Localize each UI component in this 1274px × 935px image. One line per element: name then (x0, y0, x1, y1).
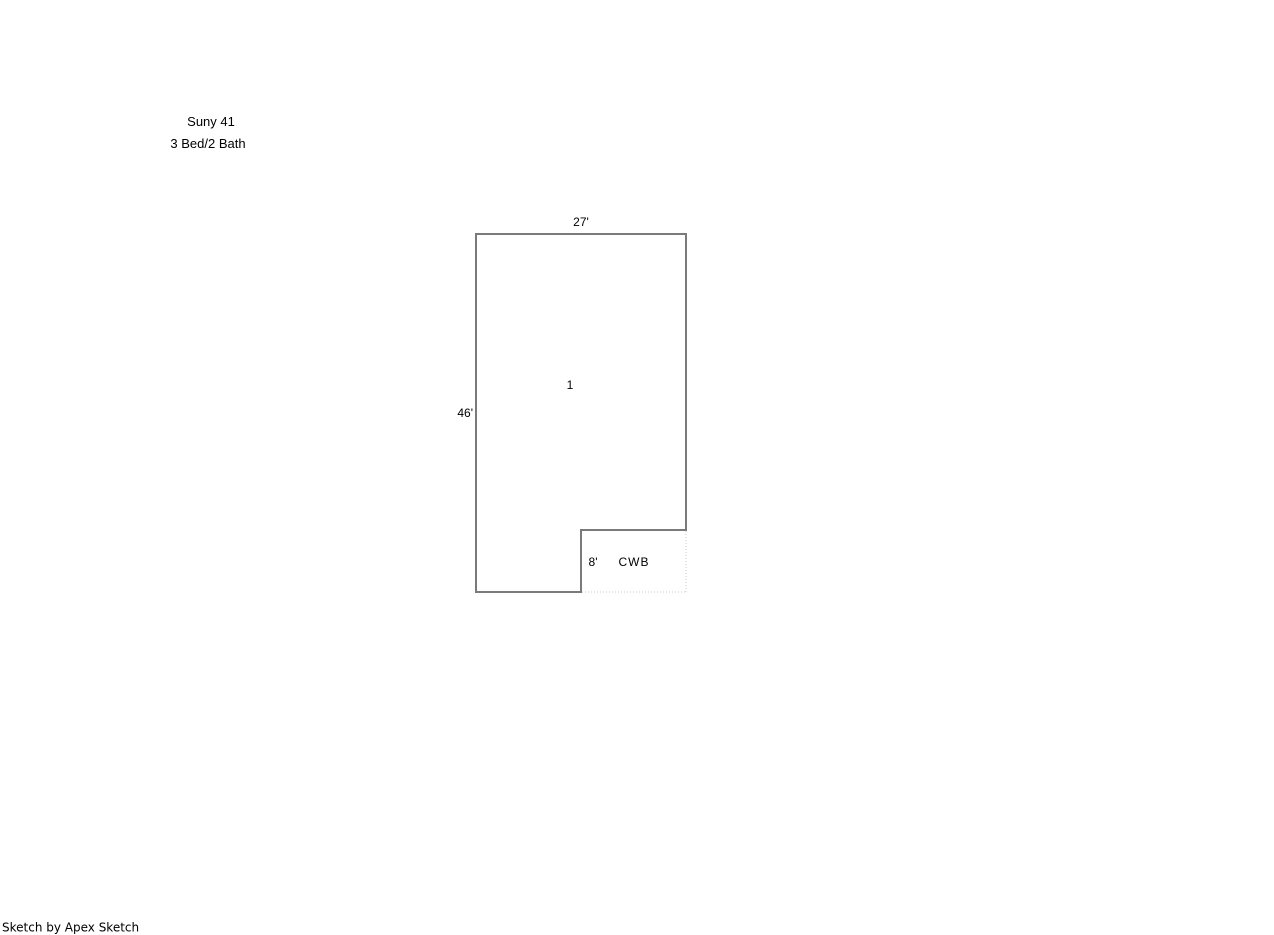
floorplan-drawing (0, 0, 1274, 935)
dimension-top-27ft: 27' (573, 216, 589, 229)
area2-cwb-label: CWB (619, 556, 650, 569)
area1-outline (476, 234, 686, 592)
sketch-canvas: Suny 41 3 Bed/2 Bath 27' 46' 8' 1 CWB Sk… (0, 0, 1274, 935)
area1-number-label: 1 (567, 379, 574, 392)
dimension-notch-8ft: 8' (589, 556, 598, 569)
dimension-left-46ft: 46' (440, 407, 473, 420)
apex-sketch-credit: Sketch by Apex Sketch (2, 921, 139, 935)
